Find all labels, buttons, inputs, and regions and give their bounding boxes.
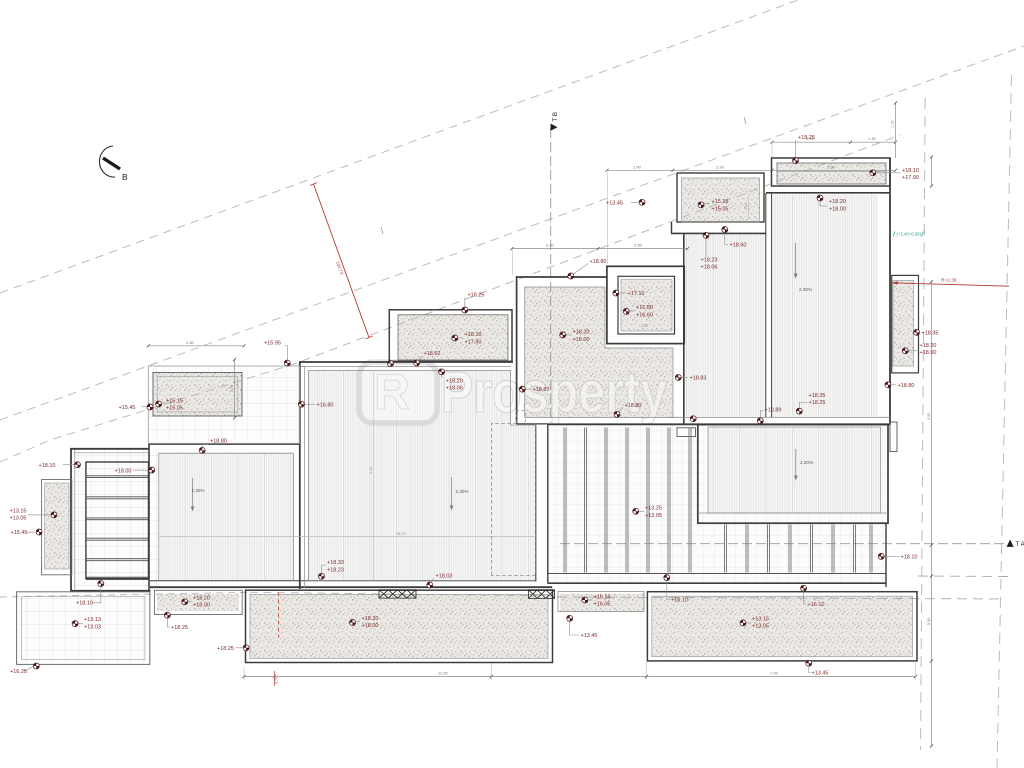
svg-text:2.80: 2.80 (186, 340, 195, 345)
svg-text:B: B (122, 172, 128, 182)
svg-text:+18.00: +18.00 (829, 206, 846, 212)
svg-text:+18.10: +18.10 (39, 463, 56, 469)
svg-text:+18.02: +18.02 (424, 351, 441, 357)
svg-text:+16.10: +16.10 (808, 602, 825, 608)
svg-text:+18.80: +18.80 (210, 438, 227, 444)
svg-text:+18.35: +18.35 (809, 393, 826, 399)
svg-text:+18.10: +18.10 (901, 555, 918, 561)
svg-text:+18.80: +18.80 (590, 259, 607, 265)
svg-text:+18.80: +18.80 (625, 403, 642, 409)
svg-text:18.20: 18.20 (396, 532, 406, 536)
svg-text:+18.25: +18.25 (217, 646, 234, 652)
svg-text:+17.10: +17.10 (628, 291, 645, 297)
svg-text:+18.00: +18.00 (362, 623, 379, 629)
svg-text:+17.90: +17.90 (465, 339, 482, 345)
svg-text:+18.10: +18.10 (671, 597, 688, 603)
svg-text:+18.00: +18.00 (573, 337, 590, 343)
svg-text:2.30%: 2.30% (799, 287, 812, 292)
svg-text:+18.10: +18.10 (902, 168, 919, 174)
svg-text:+18.20: +18.20 (362, 616, 379, 622)
svg-text:+18.83: +18.83 (690, 375, 707, 381)
svg-text:(+2.40+0.36): (+2.40+0.36) (897, 231, 922, 236)
svg-text:+18.06: +18.06 (701, 264, 718, 270)
svg-text:+18.00: +18.00 (193, 603, 210, 609)
svg-text:+18.23: +18.23 (327, 567, 344, 573)
svg-text:+18.33: +18.33 (327, 560, 344, 566)
svg-text:+13.05: +13.05 (645, 513, 662, 519)
svg-text:+18.35: +18.35 (922, 330, 939, 336)
svg-text:3.20: 3.20 (927, 413, 931, 420)
svg-text:3.25: 3.25 (641, 324, 648, 328)
svg-text:+18.89: +18.89 (765, 408, 782, 414)
svg-text:+13.13: +13.13 (84, 617, 101, 623)
svg-text:2.30%: 2.30% (192, 488, 205, 493)
svg-text:11.85: 11.85 (438, 671, 448, 676)
svg-text:+18.00: +18.00 (920, 350, 937, 356)
svg-text:5.30: 5.30 (927, 618, 931, 625)
svg-text:+18.25: +18.25 (171, 625, 188, 631)
svg-text:+13.45: +13.45 (812, 670, 829, 676)
svg-text:+16.05: +16.05 (594, 602, 611, 608)
svg-text:+18.20: +18.20 (920, 343, 937, 349)
svg-text:+18.25: +18.25 (798, 135, 815, 141)
svg-text:R: R (374, 364, 410, 420)
svg-text:+16.80: +16.80 (636, 305, 653, 311)
svg-text:+13.25: +13.25 (645, 506, 662, 512)
svg-text:2.55: 2.55 (634, 243, 643, 248)
svg-text:+15.15: +15.15 (166, 398, 183, 404)
svg-text:+18.80: +18.80 (898, 383, 915, 389)
svg-text:T B: T B (552, 112, 559, 122)
svg-text:6.30: 6.30 (369, 467, 373, 474)
svg-text:+13.05: +13.05 (10, 516, 27, 522)
svg-text:1.90: 1.90 (633, 164, 642, 169)
svg-text:+18.10: +18.10 (76, 601, 93, 607)
svg-text:Prosperty: Prosperty (441, 360, 667, 425)
svg-text:+18.03: +18.03 (436, 573, 453, 579)
svg-text:+16.15: +16.15 (594, 594, 611, 600)
svg-text:1.10: 1.10 (891, 121, 895, 128)
svg-text:+13.05: +13.05 (752, 624, 769, 630)
svg-text:+15.45: +15.45 (119, 405, 136, 411)
svg-text:+18.20: +18.20 (446, 378, 463, 384)
svg-text:+13.45: +13.45 (581, 633, 598, 639)
svg-text:+18.06: +18.06 (446, 386, 463, 392)
svg-text:+18.20: +18.20 (573, 330, 590, 336)
svg-text:+18.00: +18.00 (115, 468, 132, 474)
svg-text:+18.25: +18.25 (468, 293, 485, 299)
svg-text:+18.20: +18.20 (193, 595, 210, 601)
svg-text:+15.05: +15.05 (712, 206, 729, 212)
svg-text:+13.03: +13.03 (84, 624, 101, 630)
svg-text:T A: T A (1016, 541, 1024, 548)
svg-text:1.15: 1.15 (744, 203, 748, 210)
svg-text:2.20%: 2.20% (800, 460, 813, 465)
svg-text:3.30: 3.30 (546, 243, 555, 248)
svg-text:+15.45: +15.45 (11, 530, 28, 536)
svg-text:3.60: 3.60 (827, 164, 836, 169)
svg-text:+15.15: +15.15 (712, 199, 729, 205)
svg-text:+18.60: +18.60 (730, 242, 747, 248)
svg-text:+16.60: +16.60 (636, 312, 653, 318)
svg-text:+18.20: +18.20 (829, 199, 846, 205)
svg-text:+18.23: +18.23 (701, 258, 718, 264)
svg-text:+17.90: +17.90 (902, 175, 919, 181)
svg-text:1.75: 1.75 (230, 385, 234, 392)
svg-text:+18.87: +18.87 (533, 387, 550, 393)
svg-text:+15.05: +15.05 (166, 406, 183, 412)
svg-text:0.70: 0.70 (275, 677, 279, 684)
svg-text:R=2.36: R=2.36 (941, 278, 957, 284)
svg-text:+13.15: +13.15 (752, 616, 769, 622)
svg-text:+16.25: +16.25 (10, 669, 27, 675)
svg-text:1.45: 1.45 (868, 136, 877, 141)
svg-text:+18.10: +18.10 (465, 332, 482, 338)
svg-text:2.30%: 2.30% (456, 489, 469, 494)
svg-text:+13.15: +13.15 (10, 508, 27, 514)
svg-text:2.90: 2.90 (716, 164, 725, 169)
svg-text:+15.95: +15.95 (264, 341, 281, 347)
svg-text:7.95: 7.95 (770, 671, 779, 676)
svg-text:+13.45: +13.45 (606, 200, 623, 206)
svg-text:+18.25: +18.25 (809, 400, 826, 406)
svg-text:+16.80: +16.80 (317, 402, 334, 408)
